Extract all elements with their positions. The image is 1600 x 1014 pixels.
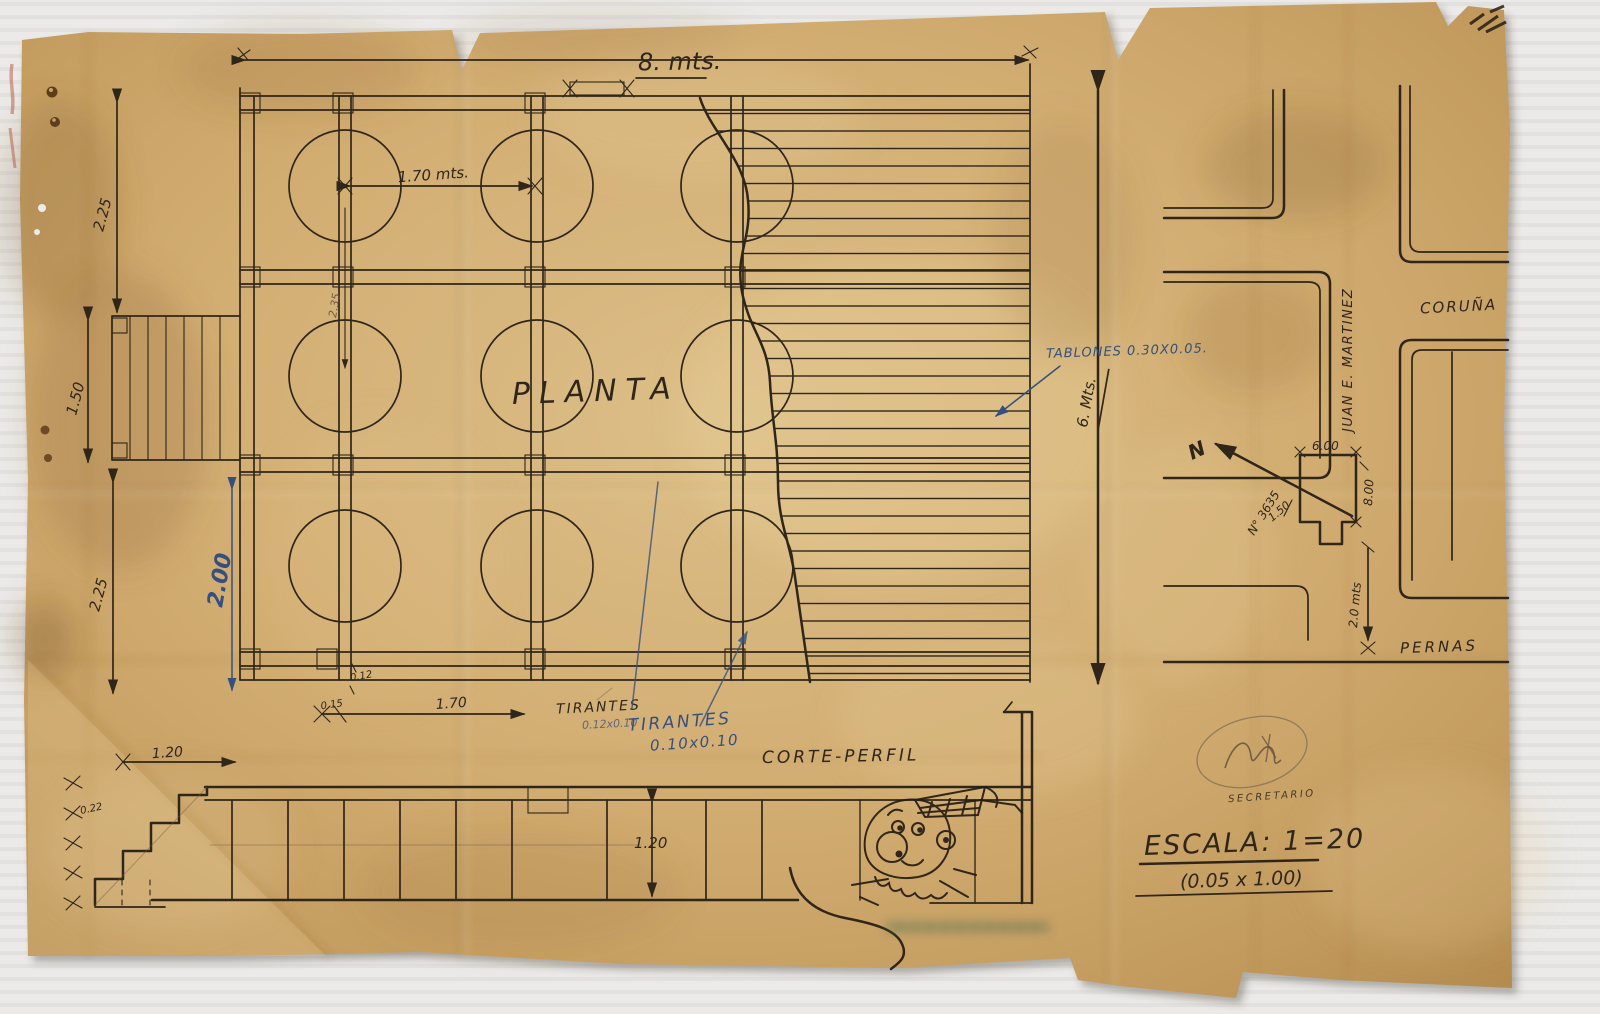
- street-pernas-label: PERNAS: [1400, 637, 1479, 658]
- dim-bottom-spacing: 1.70: [435, 695, 467, 713]
- plot-dim-frontage: 6.00: [1312, 439, 1339, 453]
- faded-green-stamp: [885, 920, 1050, 934]
- photo-of-old-plan: 8. mts. 1.70 mts. 2.25 1.50 2.25 2.00 2.…: [0, 0, 1600, 1014]
- section-dim-height: 1.20: [634, 834, 667, 852]
- plan-photo-svg: 8. mts. 1.70 mts. 2.25 1.50 2.25 2.00 2.…: [0, 0, 1600, 1014]
- scale-detail-text: (0.05 x 1.00): [1180, 867, 1303, 893]
- street-juan-e-martinez-label: JUAN E. MARTINEZ: [1341, 288, 1356, 435]
- section-title: CORTE-PERFIL: [762, 745, 920, 768]
- street-coruna-label: CORUÑA: [1420, 295, 1498, 318]
- plot-dim-depth: 8.00: [1361, 478, 1376, 506]
- section-dim-stair-run: 1.20: [151, 744, 183, 762]
- plan-title: PLANTA: [511, 371, 680, 412]
- dim-top-width: 8. mts.: [638, 47, 722, 76]
